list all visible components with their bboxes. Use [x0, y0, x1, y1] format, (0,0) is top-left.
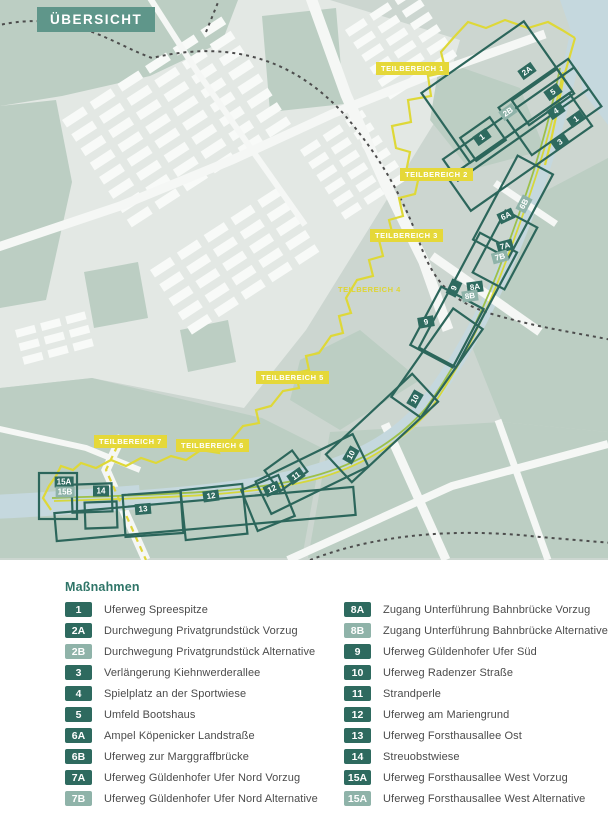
legend-row: 13Uferweg Forsthausallee Ost — [344, 728, 608, 744]
page-title: ÜBERSICHT — [37, 7, 155, 32]
teilbereich-label: TEILBEREICH 4 — [338, 285, 401, 294]
green-area — [84, 262, 148, 328]
legend-row: 11Strandperle — [344, 686, 608, 702]
legend-label: Verlängerung Kiehnwerderallee — [104, 667, 260, 679]
legend-badge: 11 — [344, 686, 371, 701]
overview-map: ÜBERSICHT TEILBEREICH 1TEILBEREICH 2TEIL… — [0, 0, 608, 560]
legend-label: Uferweg Radenzer Straße — [383, 667, 513, 679]
measure-badge: 8B — [461, 289, 478, 302]
legend-row: 12Uferweg am Mariengrund — [344, 707, 608, 723]
measure-badge: 14 — [93, 486, 109, 497]
legend-badge: 6B — [65, 749, 92, 764]
legend-label: Ampel Köpenicker Landstraße — [104, 730, 255, 742]
teilbereich-label: TEILBEREICH 6 — [176, 439, 249, 452]
legend-title: Maßnahmen — [65, 580, 140, 594]
legend-label: Uferweg zur Marggraffbrücke — [104, 751, 249, 763]
legend-badge: 9 — [344, 644, 371, 659]
legend-badge: 8B — [344, 623, 371, 638]
page: ÜBERSICHT TEILBEREICH 1TEILBEREICH 2TEIL… — [0, 0, 608, 821]
measure-badge: 15B — [56, 487, 75, 498]
legend-row: 15AUferweg Forsthausallee West Vorzug — [344, 770, 608, 786]
legend-label: Strandperle — [383, 688, 441, 700]
legend-row: 14Streuobstwiese — [344, 749, 608, 765]
legend-badge: 3 — [65, 665, 92, 680]
legend: Maßnahmen 1Uferweg Spreespitze2ADurchweg… — [0, 578, 608, 821]
legend-label: Uferweg am Mariengrund — [383, 709, 509, 721]
legend-row: 2BDurchwegung Privatgrundstück Alternati… — [65, 644, 318, 660]
teilbereich-label: TEILBEREICH 5 — [256, 371, 329, 384]
legend-label: Uferweg Spreespitze — [104, 604, 208, 616]
legend-row: 7BUferweg Güldenhofer Ufer Nord Alternat… — [65, 791, 318, 807]
legend-badge: 13 — [344, 728, 371, 743]
legend-label: Zugang Unterführung Bahnbrücke Alternati… — [383, 625, 608, 637]
legend-row: 9Uferweg Güldenhofer Ufer Süd — [344, 644, 608, 660]
legend-row: 15AUferweg Forsthausallee West Alternati… — [344, 791, 608, 807]
legend-label: Durchwegung Privatgrundstück Vorzug — [104, 625, 298, 637]
legend-row: 6AAmpel Köpenicker Landstraße — [65, 728, 318, 744]
measure-badge: 12 — [202, 489, 219, 502]
teilbereich-label: TEILBEREICH 1 — [376, 62, 449, 75]
legend-row: 1Uferweg Spreespitze — [65, 602, 318, 618]
legend-label: Streuobstwiese — [383, 751, 460, 763]
legend-badge: 5 — [65, 707, 92, 722]
legend-badge: 7A — [65, 770, 92, 785]
legend-label: Spielplatz an der Sportwiese — [104, 688, 246, 700]
legend-label: Uferweg Forsthausallee West Vorzug — [383, 772, 568, 784]
legend-row: 2ADurchwegung Privatgrundstück Vorzug — [65, 623, 318, 639]
teilbereich-label: TEILBEREICH 3 — [370, 229, 443, 242]
legend-badge: 15A — [344, 770, 371, 785]
legend-row: 7AUferweg Güldenhofer Ufer Nord Vorzug — [65, 770, 318, 786]
legend-row: 8BZugang Unterführung Bahnbrücke Alterna… — [344, 623, 608, 639]
legend-badge: 2A — [65, 623, 92, 638]
legend-label: Zugang Unterführung Bahnbrücke Vorzug — [383, 604, 590, 616]
legend-badge: 7B — [65, 791, 92, 806]
legend-label: Uferweg Forsthausallee West Alternative — [383, 793, 585, 805]
legend-badge: 12 — [344, 707, 371, 722]
legend-badge: 6A — [65, 728, 92, 743]
legend-label: Umfeld Bootshaus — [104, 709, 195, 721]
legend-row: 10Uferweg Radenzer Straße — [344, 665, 608, 681]
legend-row: 5Umfeld Bootshaus — [65, 707, 318, 723]
legend-column-left: 1Uferweg Spreespitze2ADurchwegung Privat… — [65, 602, 318, 807]
legend-badge: 8A — [344, 602, 371, 617]
legend-label: Uferweg Forsthausallee Ost — [383, 730, 522, 742]
legend-label: Uferweg Güldenhofer Ufer Nord Alternativ… — [104, 793, 318, 805]
legend-badge: 14 — [344, 749, 371, 764]
legend-column-right: 8AZugang Unterführung Bahnbrücke Vorzug8… — [344, 602, 608, 807]
legend-row: 6BUferweg zur Marggraffbrücke — [65, 749, 318, 765]
legend-label: Durchwegung Privatgrundstück Alternative — [104, 646, 315, 658]
legend-badge: 1 — [65, 602, 92, 617]
legend-label: Uferweg Güldenhofer Ufer Nord Vorzug — [104, 772, 300, 784]
legend-badge: 4 — [65, 686, 92, 701]
legend-row: 3Verlängerung Kiehnwerderallee — [65, 665, 318, 681]
legend-row: 4Spielplatz an der Sportwiese — [65, 686, 318, 702]
teilbereich-label: TEILBEREICH 2 — [400, 168, 473, 181]
legend-badge: 2B — [65, 644, 92, 659]
legend-row: 8AZugang Unterführung Bahnbrücke Vorzug — [344, 602, 608, 618]
legend-badge: 15A — [344, 791, 371, 806]
teilbereich-label: TEILBEREICH 7 — [94, 435, 167, 448]
measure-badge: 13 — [135, 503, 152, 515]
legend-badge: 10 — [344, 665, 371, 680]
legend-label: Uferweg Güldenhofer Ufer Süd — [383, 646, 537, 658]
